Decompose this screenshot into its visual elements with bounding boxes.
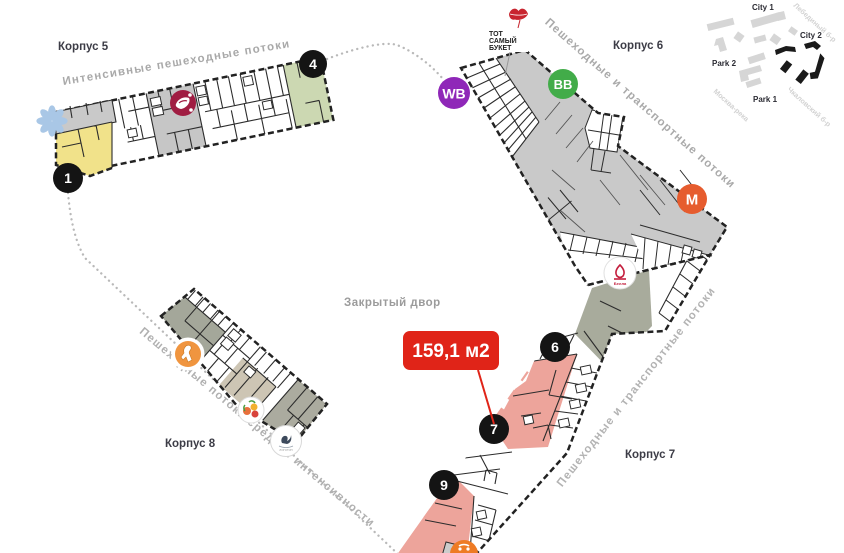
svg-text:Корпус 7: Корпус 7 — [625, 449, 675, 461]
svg-text:City 2: City 2 — [800, 31, 822, 40]
svg-text:1: 1 — [64, 170, 72, 186]
svg-text:9: 9 — [440, 477, 448, 493]
svg-text:ЛОГОТИП: ЛОГОТИП — [279, 448, 292, 452]
svg-text:ТОТ: ТОТ — [489, 31, 504, 38]
svg-text:Корпус 8: Корпус 8 — [165, 438, 216, 450]
svg-text:Чкаловский б-р: Чкаловский б-р — [786, 85, 834, 129]
svg-text:М: М — [686, 192, 699, 209]
svg-text:Park 1: Park 1 — [753, 95, 778, 104]
svg-text:САМЫЙ: САМЫЙ — [489, 36, 517, 45]
svg-text:City 1: City 1 — [752, 3, 774, 12]
svg-text:Белла: Белла — [614, 281, 627, 286]
svg-text:Закрытый двор: Закрытый двор — [344, 297, 441, 309]
svg-text:Москва-река: Москва-река — [712, 87, 752, 124]
svg-text:Корпус 5: Корпус 5 — [58, 41, 109, 53]
svg-text:4: 4 — [309, 56, 317, 72]
svg-text:159,1 м2: 159,1 м2 — [412, 341, 489, 362]
svg-text:6: 6 — [551, 339, 559, 355]
svg-text:Park 2: Park 2 — [712, 59, 737, 68]
svg-text:Корпус 6: Корпус 6 — [613, 40, 663, 52]
svg-text:ВВ: ВВ — [554, 77, 573, 92]
svg-text:БУКЕТ: БУКЕТ — [489, 45, 512, 52]
svg-text:WB: WB — [442, 86, 465, 102]
